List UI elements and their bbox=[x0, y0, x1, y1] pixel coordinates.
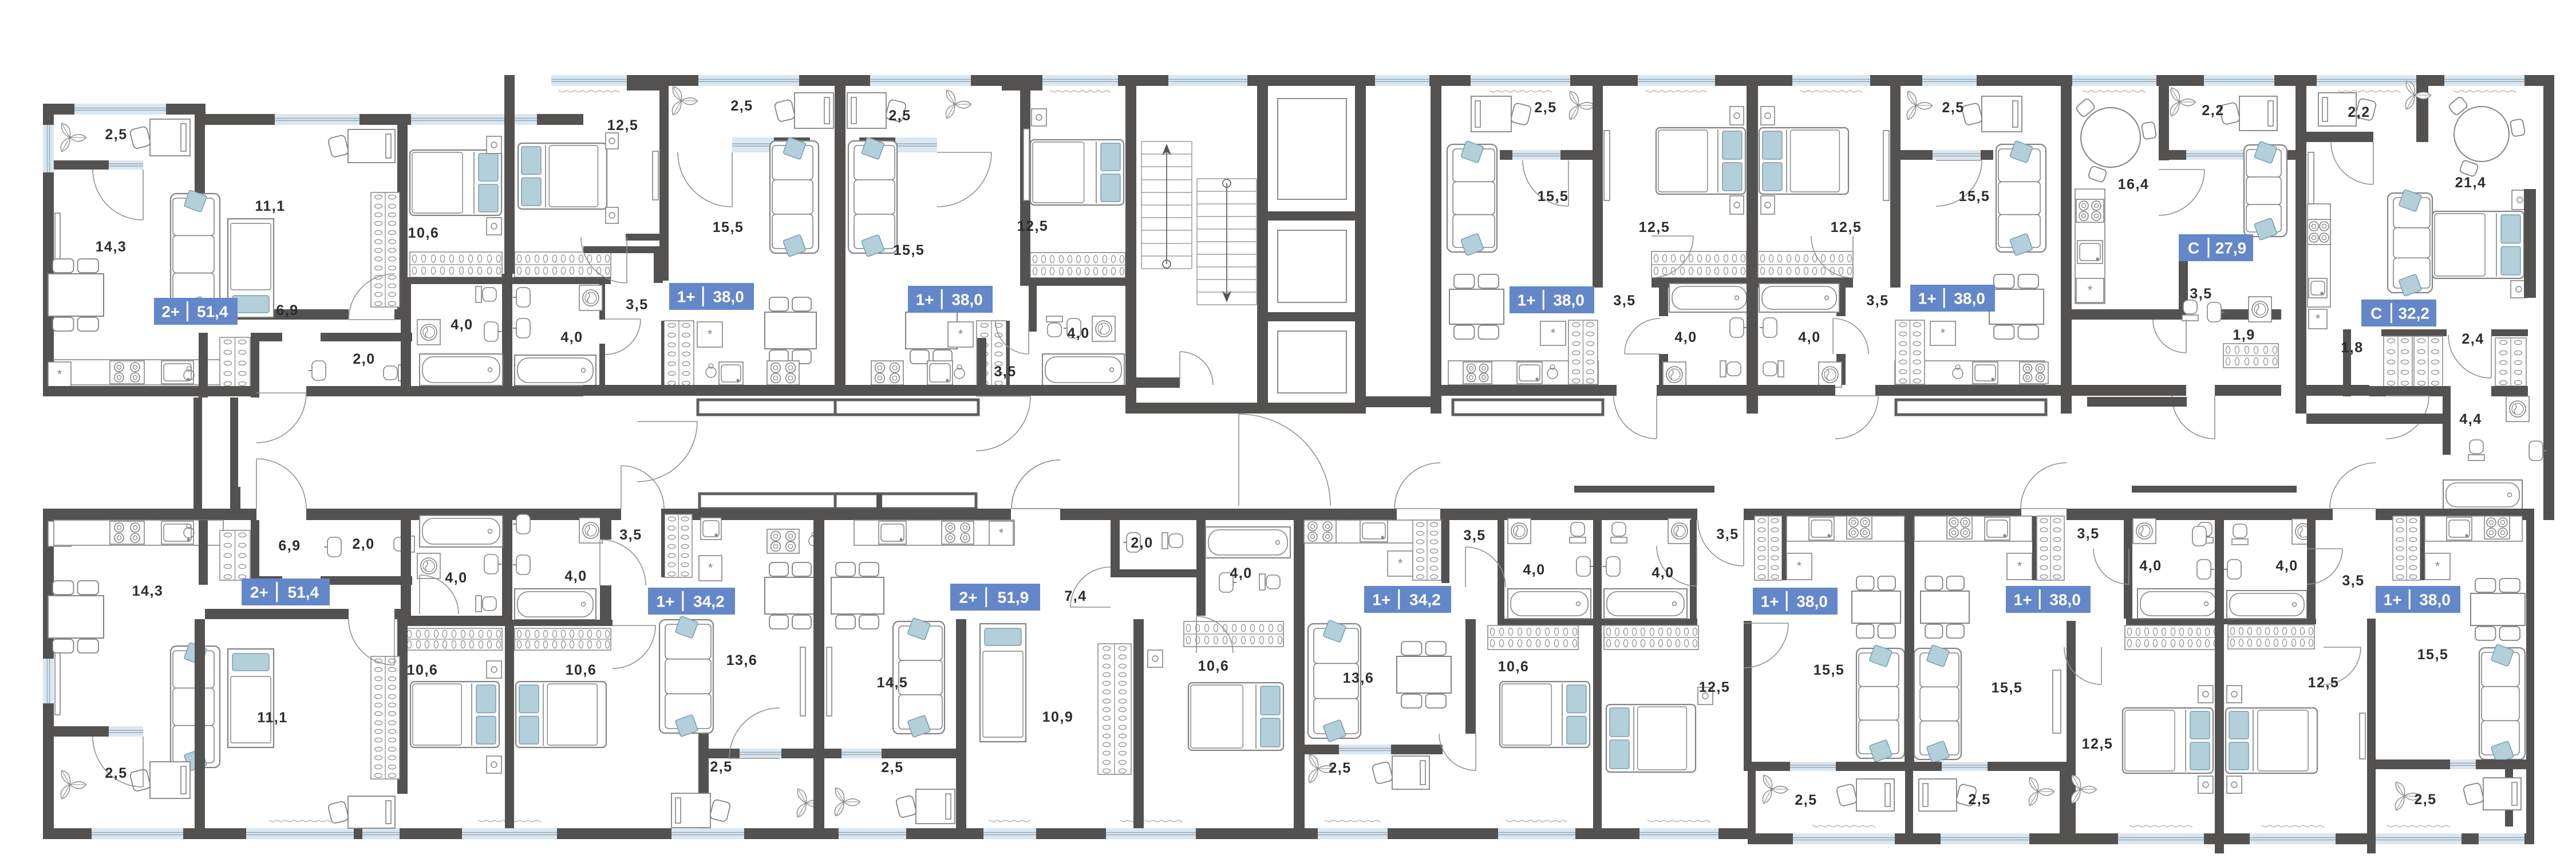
svg-text:2,0: 2,0 bbox=[1131, 535, 1153, 551]
svg-text:3,5: 3,5 bbox=[2190, 286, 2212, 302]
svg-text:4,0: 4,0 bbox=[1523, 562, 1545, 578]
svg-text:2,2: 2,2 bbox=[2348, 104, 2370, 120]
svg-text:6,9: 6,9 bbox=[278, 538, 301, 554]
svg-text:2,5: 2,5 bbox=[105, 765, 127, 781]
svg-text:27,9: 27,9 bbox=[2215, 239, 2247, 257]
svg-text:4,0: 4,0 bbox=[1067, 325, 1089, 341]
svg-text:4,0: 4,0 bbox=[1798, 329, 1820, 345]
svg-text:12,5: 12,5 bbox=[2308, 675, 2340, 691]
svg-text:10,6: 10,6 bbox=[1498, 659, 1530, 675]
svg-text:1+: 1+ bbox=[1918, 290, 1937, 308]
svg-text:15,5: 15,5 bbox=[1959, 188, 1990, 204]
svg-text:С: С bbox=[2370, 305, 2382, 322]
svg-text:4,0: 4,0 bbox=[1674, 329, 1697, 345]
svg-text:14,3: 14,3 bbox=[132, 583, 164, 599]
svg-text:15,5: 15,5 bbox=[1992, 680, 2023, 696]
svg-text:38,0: 38,0 bbox=[2419, 591, 2451, 609]
svg-text:1,9: 1,9 bbox=[2233, 327, 2255, 343]
svg-text:2,5: 2,5 bbox=[710, 759, 732, 775]
svg-text:34,2: 34,2 bbox=[693, 593, 725, 611]
svg-text:*: * bbox=[2017, 559, 2022, 573]
svg-text:1+: 1+ bbox=[2384, 591, 2402, 609]
svg-text:*: * bbox=[57, 367, 62, 381]
svg-text:4,0: 4,0 bbox=[451, 317, 473, 333]
svg-text:*: * bbox=[708, 327, 713, 341]
svg-text:2,2: 2,2 bbox=[2202, 103, 2224, 119]
svg-text:14,3: 14,3 bbox=[96, 239, 127, 255]
svg-text:13,6: 13,6 bbox=[1343, 670, 1374, 686]
svg-text:2,5: 2,5 bbox=[2414, 792, 2436, 808]
svg-text:12,5: 12,5 bbox=[607, 117, 639, 133]
svg-text:1+: 1+ bbox=[1761, 593, 1779, 611]
svg-text:1+: 1+ bbox=[656, 593, 674, 611]
svg-text:1+: 1+ bbox=[1372, 591, 1390, 609]
svg-text:1+: 1+ bbox=[916, 291, 934, 309]
svg-text:12,5: 12,5 bbox=[1017, 218, 1049, 234]
svg-text:2,5: 2,5 bbox=[1795, 792, 1817, 808]
svg-text:51,4: 51,4 bbox=[288, 584, 319, 601]
svg-text:12,5: 12,5 bbox=[1639, 219, 1670, 235]
svg-text:*: * bbox=[1551, 326, 1556, 340]
svg-text:21,4: 21,4 bbox=[2455, 175, 2487, 191]
svg-text:3,5: 3,5 bbox=[1613, 293, 1635, 309]
svg-text:15,5: 15,5 bbox=[1814, 662, 1845, 678]
svg-text:2+: 2+ bbox=[959, 589, 977, 607]
svg-text:38,0: 38,0 bbox=[1954, 290, 1985, 308]
svg-text:*: * bbox=[1941, 326, 1946, 340]
svg-text:6,9: 6,9 bbox=[276, 302, 298, 318]
svg-text:2+: 2+ bbox=[161, 303, 180, 321]
svg-text:2,4: 2,4 bbox=[2462, 331, 2484, 347]
svg-text:51,4: 51,4 bbox=[197, 303, 228, 321]
svg-text:4,4: 4,4 bbox=[2459, 411, 2482, 427]
svg-text:2,5: 2,5 bbox=[730, 98, 753, 114]
svg-text:10,6: 10,6 bbox=[1198, 658, 1230, 674]
svg-text:2,5: 2,5 bbox=[881, 759, 903, 776]
svg-text:38,0: 38,0 bbox=[713, 288, 744, 306]
svg-text:4,0: 4,0 bbox=[560, 329, 583, 345]
svg-text:2,0: 2,0 bbox=[353, 351, 375, 367]
svg-text:15,5: 15,5 bbox=[1538, 188, 1569, 204]
svg-text:*: * bbox=[1398, 556, 1403, 570]
svg-text:1,8: 1,8 bbox=[2341, 340, 2363, 356]
svg-text:34,2: 34,2 bbox=[1409, 591, 1441, 609]
svg-text:4,0: 4,0 bbox=[1230, 565, 1252, 581]
svg-text:2,5: 2,5 bbox=[1942, 100, 1964, 116]
svg-text:10,9: 10,9 bbox=[1042, 709, 1074, 725]
svg-text:4,0: 4,0 bbox=[2275, 558, 2298, 574]
svg-text:7,4: 7,4 bbox=[1064, 588, 1086, 604]
svg-text:13,6: 13,6 bbox=[726, 652, 758, 668]
svg-text:2,5: 2,5 bbox=[1968, 792, 1990, 808]
svg-text:3,5: 3,5 bbox=[2342, 573, 2364, 589]
svg-text:38,0: 38,0 bbox=[1553, 292, 1585, 309]
svg-text:38,0: 38,0 bbox=[951, 291, 983, 309]
svg-text:10,6: 10,6 bbox=[566, 662, 597, 678]
svg-text:12,5: 12,5 bbox=[1699, 679, 1730, 695]
svg-text:*: * bbox=[708, 561, 713, 575]
svg-text:3,5: 3,5 bbox=[1463, 528, 1485, 544]
svg-text:15,5: 15,5 bbox=[713, 219, 744, 235]
svg-text:10,6: 10,6 bbox=[408, 225, 440, 241]
svg-text:38,0: 38,0 bbox=[1796, 593, 1828, 611]
svg-text:*: * bbox=[958, 327, 963, 341]
svg-text:2,5: 2,5 bbox=[105, 127, 127, 143]
svg-text:12,5: 12,5 bbox=[1831, 219, 1862, 235]
svg-text:3,5: 3,5 bbox=[626, 297, 648, 313]
svg-text:*: * bbox=[2435, 559, 2440, 573]
svg-text:*: * bbox=[2316, 312, 2321, 326]
svg-text:32,2: 32,2 bbox=[2398, 305, 2429, 322]
svg-text:3,5: 3,5 bbox=[1866, 293, 1888, 309]
svg-text:11,1: 11,1 bbox=[257, 710, 287, 726]
svg-text:51,9: 51,9 bbox=[998, 589, 1029, 607]
svg-text:16,4: 16,4 bbox=[2118, 176, 2150, 192]
svg-text:3,5: 3,5 bbox=[619, 527, 642, 543]
svg-text:14,5: 14,5 bbox=[877, 675, 908, 691]
svg-text:2,5: 2,5 bbox=[1329, 760, 1351, 776]
svg-text:*: * bbox=[999, 526, 1004, 540]
svg-text:4,0: 4,0 bbox=[2139, 558, 2162, 574]
svg-text:1+: 1+ bbox=[1518, 292, 1536, 309]
svg-text:11,1: 11,1 bbox=[255, 198, 285, 214]
svg-text:38,0: 38,0 bbox=[2049, 591, 2081, 609]
svg-text:3,5: 3,5 bbox=[1716, 526, 1739, 542]
svg-text:*: * bbox=[1797, 559, 1802, 573]
svg-text:4,0: 4,0 bbox=[445, 570, 467, 586]
svg-text:2+: 2+ bbox=[250, 584, 268, 601]
svg-text:4,0: 4,0 bbox=[1652, 565, 1674, 581]
svg-text:С: С bbox=[2188, 239, 2199, 257]
svg-text:12,5: 12,5 bbox=[2082, 736, 2113, 752]
svg-text:3,5: 3,5 bbox=[994, 364, 1016, 380]
svg-text:3,5: 3,5 bbox=[2077, 526, 2099, 542]
svg-text:2,5: 2,5 bbox=[1534, 100, 1556, 116]
svg-text:15,5: 15,5 bbox=[2417, 647, 2449, 663]
svg-text:1+: 1+ bbox=[677, 288, 696, 306]
svg-text:1+: 1+ bbox=[2014, 591, 2032, 609]
svg-text:4,0: 4,0 bbox=[564, 568, 587, 584]
svg-text:2,5: 2,5 bbox=[888, 108, 911, 124]
svg-text:10,6: 10,6 bbox=[407, 662, 438, 678]
svg-text:*: * bbox=[2088, 283, 2093, 297]
svg-text:2,0: 2,0 bbox=[352, 536, 374, 552]
svg-text:15,5: 15,5 bbox=[894, 242, 925, 258]
